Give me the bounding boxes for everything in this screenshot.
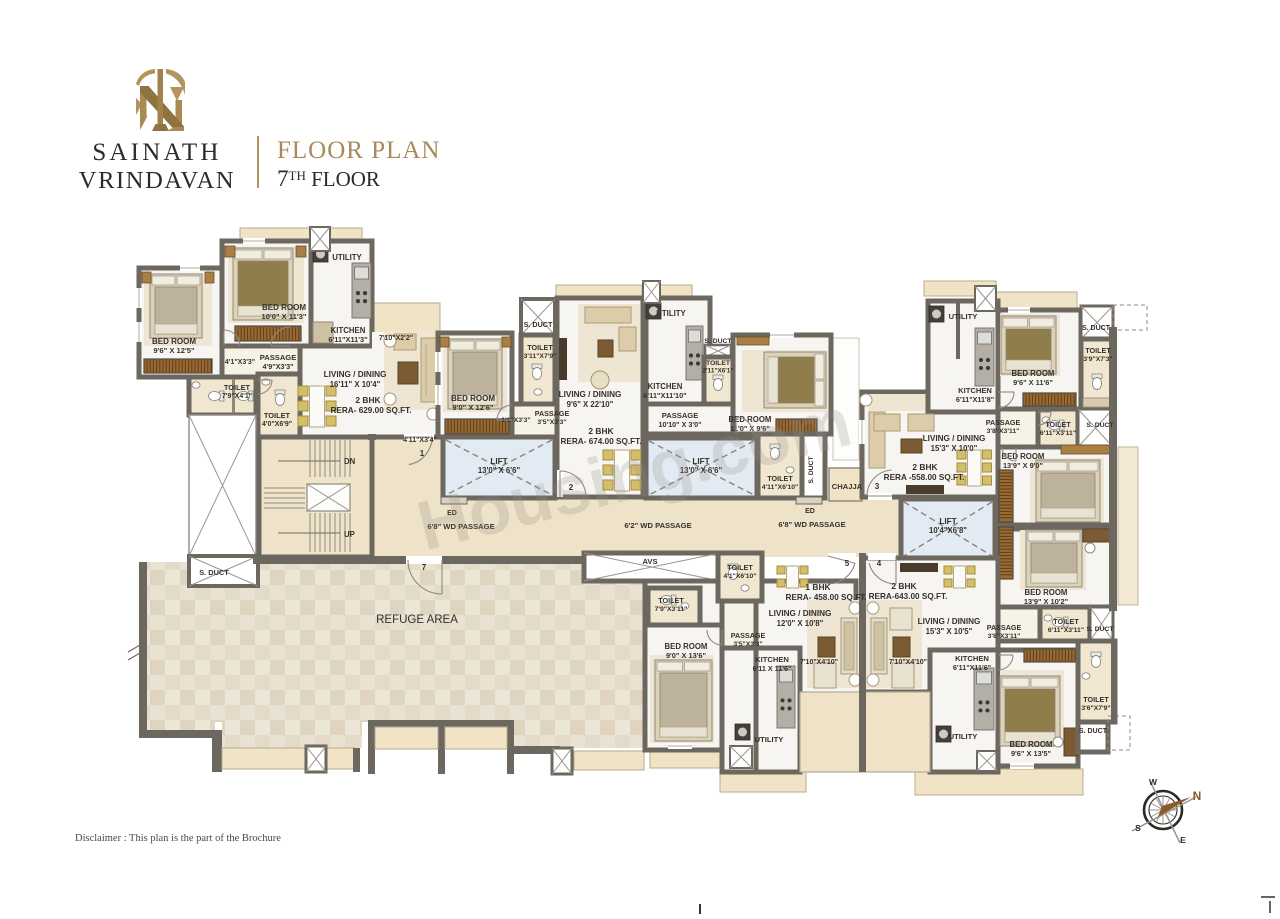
svg-text:S. DUCT: S. DUCT (1086, 626, 1114, 633)
svg-text:UTILITY: UTILITY (949, 732, 978, 741)
svg-text:BED ROOM: BED ROOM (262, 303, 306, 312)
svg-text:BED ROOM: BED ROOM (451, 394, 495, 403)
svg-text:4'11"X6'10": 4'11"X6'10" (762, 484, 799, 491)
svg-text:1: 1 (420, 449, 425, 458)
svg-text:LIVING / DINING: LIVING / DINING (559, 390, 622, 399)
svg-text:3'8"X3'11": 3'8"X3'11" (987, 428, 1020, 435)
svg-text:4'1"X3'3": 4'1"X3'3" (225, 359, 255, 366)
svg-text:BED ROOM: BED ROOM (1002, 452, 1045, 461)
svg-text:3: 3 (875, 482, 880, 491)
svg-text:PASSAGE: PASSAGE (731, 631, 766, 640)
svg-text:2 BHK: 2 BHK (355, 395, 380, 405)
svg-text:TOILET: TOILET (1053, 617, 1079, 626)
svg-text:6'11"X11'10": 6'11"X11'10" (643, 391, 687, 400)
svg-text:7'10"X4'10": 7'10"X4'10" (800, 659, 838, 666)
svg-text:7'9"X3'11": 7'9"X3'11" (655, 606, 688, 613)
svg-text:KITCHEN: KITCHEN (958, 386, 992, 395)
svg-text:RERA -558.00 SQ.FT.: RERA -558.00 SQ.FT. (884, 473, 965, 482)
svg-text:S. DUCT: S. DUCT (1082, 325, 1111, 332)
svg-text:RERA- 629.00 SQ.FT.: RERA- 629.00 SQ.FT. (331, 406, 412, 415)
svg-text:LIVING / DINING: LIVING / DINING (324, 370, 387, 379)
svg-text:N: N (1193, 789, 1202, 803)
svg-text:4'0"X6'9": 4'0"X6'9" (262, 421, 292, 428)
svg-text:TOILET: TOILET (224, 383, 251, 392)
svg-text:5: 5 (845, 559, 850, 568)
svg-text:9'6" X 12'5": 9'6" X 12'5" (153, 346, 195, 355)
svg-text:BED ROOM: BED ROOM (1012, 369, 1055, 378)
svg-text:LIVING / DINING: LIVING / DINING (918, 617, 981, 626)
svg-text:FLOOR PLAN: FLOOR PLAN (277, 137, 441, 164)
svg-text:PASSAGE: PASSAGE (535, 409, 570, 418)
svg-text:4: 4 (877, 559, 882, 568)
svg-text:12'0" X 10'8": 12'0" X 10'8" (777, 619, 824, 628)
svg-text:4'11"X3'4": 4'11"X3'4" (403, 437, 437, 444)
svg-text:S: S (1135, 823, 1141, 833)
svg-text:BED ROOM: BED ROOM (1010, 740, 1053, 749)
svg-text:2 BHK: 2 BHK (588, 426, 613, 436)
svg-text:E: E (1180, 835, 1186, 845)
svg-text:9'6" X 22'10": 9'6" X 22'10" (567, 400, 614, 409)
svg-text:TOILET: TOILET (706, 360, 731, 367)
svg-text:UP: UP (344, 530, 355, 539)
svg-text:3'5"X3'3": 3'5"X3'3" (733, 641, 762, 648)
svg-text:7'9"X4'1": 7'9"X4'1" (222, 393, 252, 400)
svg-text:Disclaimer : This plan is the: Disclaimer : This plan is the part of th… (75, 833, 281, 844)
svg-text:S. DUCT: S. DUCT (1086, 422, 1114, 429)
svg-text:KITCHEN: KITCHEN (955, 654, 989, 663)
svg-text:BED ROOM: BED ROOM (665, 642, 708, 651)
svg-text:7: 7 (422, 563, 427, 572)
svg-text:4'9"X3'3": 4'9"X3'3" (262, 362, 293, 371)
svg-text:6'11"X11'3": 6'11"X11'3" (328, 335, 368, 344)
svg-text:LIVING / DINING: LIVING / DINING (769, 609, 832, 618)
svg-text:3'6"X7'9": 3'6"X7'9" (1081, 705, 1110, 712)
svg-text:2'11"X6'1": 2'11"X6'1" (703, 368, 734, 375)
svg-text:TOILET: TOILET (658, 596, 684, 605)
svg-text:PASSAGE: PASSAGE (986, 418, 1021, 427)
svg-text:TOILET: TOILET (264, 411, 291, 420)
svg-text:UTILITY: UTILITY (656, 309, 686, 318)
svg-text:S. DUCT: S. DUCT (524, 320, 553, 329)
svg-text:6'8" WD PASSAGE: 6'8" WD PASSAGE (778, 520, 845, 529)
svg-text:2 BHK: 2 BHK (912, 462, 937, 472)
svg-text:RERA- 458.00 SQ.FT.: RERA- 458.00 SQ.FT. (786, 593, 867, 602)
svg-text:KITCHEN: KITCHEN (648, 382, 683, 391)
svg-text:3'11"X7'9": 3'11"X7'9" (524, 353, 557, 360)
svg-text:3'8"X3'11": 3'8"X3'11" (988, 633, 1021, 640)
svg-text:3'9"X7'3": 3'9"X7'3" (1083, 356, 1112, 363)
svg-text:13'9" X 10'2": 13'9" X 10'2" (1024, 597, 1069, 606)
svg-text:15'3" X 10'5": 15'3" X 10'5" (926, 627, 973, 636)
svg-text:3'5"X3'3": 3'5"X3'3" (537, 419, 566, 426)
svg-text:TOILET: TOILET (1085, 346, 1111, 355)
svg-text:TOILET: TOILET (1045, 420, 1071, 429)
svg-text:UTILITY: UTILITY (332, 253, 362, 262)
svg-text:6'11"X3'11": 6'11"X3'11" (1048, 627, 1084, 634)
svg-text:S. DUCT: S. DUCT (704, 338, 732, 345)
svg-text:10'4"X6'8": 10'4"X6'8" (929, 526, 967, 535)
svg-text:7'10"X2'2": 7'10"X2'2" (379, 335, 413, 342)
svg-text:SAINATH: SAINATH (92, 139, 221, 166)
svg-text:VRINDAVAN: VRINDAVAN (79, 167, 235, 194)
svg-text:10'0" X 11'3": 10'0" X 11'3" (261, 312, 306, 321)
svg-text:AVS: AVS (642, 557, 657, 566)
svg-text:PASSAGE: PASSAGE (987, 623, 1022, 632)
svg-text:LIFT: LIFT (939, 517, 956, 526)
svg-text:TOILET: TOILET (1083, 695, 1109, 704)
svg-text:REFUGE AREA: REFUGE AREA (376, 614, 458, 626)
svg-text:6'11"X11'6": 6'11"X11'6" (953, 663, 991, 672)
svg-text:UTILITY: UTILITY (949, 312, 978, 321)
svg-text:KITCHEN: KITCHEN (331, 326, 366, 335)
svg-text:16'11" X 10'4": 16'11" X 10'4" (330, 380, 381, 389)
svg-text:S. DUCT: S. DUCT (199, 568, 229, 577)
svg-text:6'11 X 11'6": 6'11 X 11'6" (753, 664, 792, 673)
svg-text:TOILET: TOILET (727, 563, 753, 572)
svg-text:S. DUCT: S. DUCT (1079, 728, 1108, 735)
svg-text:9'0" X 13'6": 9'0" X 13'6" (666, 651, 707, 660)
svg-text:9'6" X 13'5": 9'6" X 13'5" (1011, 749, 1052, 758)
svg-text:15'3" X 10'0": 15'3" X 10'0" (931, 444, 978, 453)
svg-text:RERA-643.00 SQ.FT.: RERA-643.00 SQ.FT. (869, 592, 948, 601)
svg-text:1 BHK: 1 BHK (805, 582, 830, 592)
svg-text:4'1"X6'10": 4'1"X6'10" (723, 573, 756, 580)
svg-text:TOILET: TOILET (527, 343, 553, 352)
svg-text:ED: ED (805, 508, 815, 515)
svg-text:KITCHEN: KITCHEN (755, 655, 789, 664)
svg-text:CHAJJA: CHAJJA (832, 482, 863, 491)
svg-text:LIFT: LIFT (490, 457, 507, 466)
svg-text:6'11"X3'11": 6'11"X3'11" (1040, 430, 1076, 437)
svg-text:2 BHK: 2 BHK (891, 581, 916, 591)
svg-text:DN: DN (344, 457, 356, 466)
svg-text:7'10"X4'10": 7'10"X4'10" (889, 659, 927, 666)
svg-text:BED ROOM: BED ROOM (152, 337, 196, 346)
svg-text:PASSAGE: PASSAGE (260, 353, 297, 362)
svg-text:6'11"X11'8": 6'11"X11'8" (956, 395, 994, 404)
svg-text:13'9" X 9'0": 13'9" X 9'0" (1003, 461, 1044, 470)
svg-text:6'2" WD PASSAGE: 6'2" WD PASSAGE (624, 521, 691, 530)
svg-text:BED ROOM: BED ROOM (1025, 588, 1068, 597)
svg-text:W: W (1149, 777, 1158, 787)
svg-text:9'0" X 12'6": 9'0" X 12'6" (452, 403, 494, 412)
svg-text:LIVING / DINING: LIVING / DINING (923, 434, 986, 443)
svg-text:9'6" X 11'6": 9'6" X 11'6" (1013, 378, 1053, 387)
svg-text:UTILITY: UTILITY (755, 735, 784, 744)
